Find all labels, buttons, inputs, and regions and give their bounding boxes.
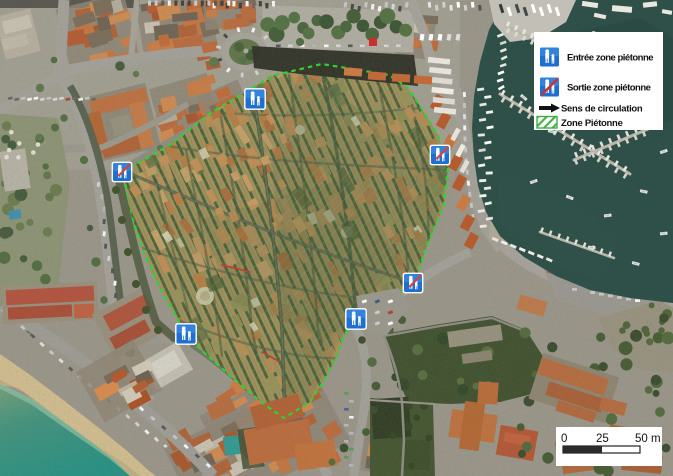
svg-text:Entrée zone piétonne: Entrée zone piétonne	[567, 53, 653, 64]
svg-text:25: 25	[596, 433, 609, 445]
svg-text:Zone Piétonne: Zone Piétonne	[561, 118, 623, 129]
svg-text:50 m: 50 m	[635, 433, 661, 445]
svg-text:Sortie zone piétonne: Sortie zone piétonne	[567, 83, 651, 94]
svg-text:Sens de circulation: Sens de circulation	[561, 104, 643, 115]
svg-text:0: 0	[561, 433, 567, 445]
